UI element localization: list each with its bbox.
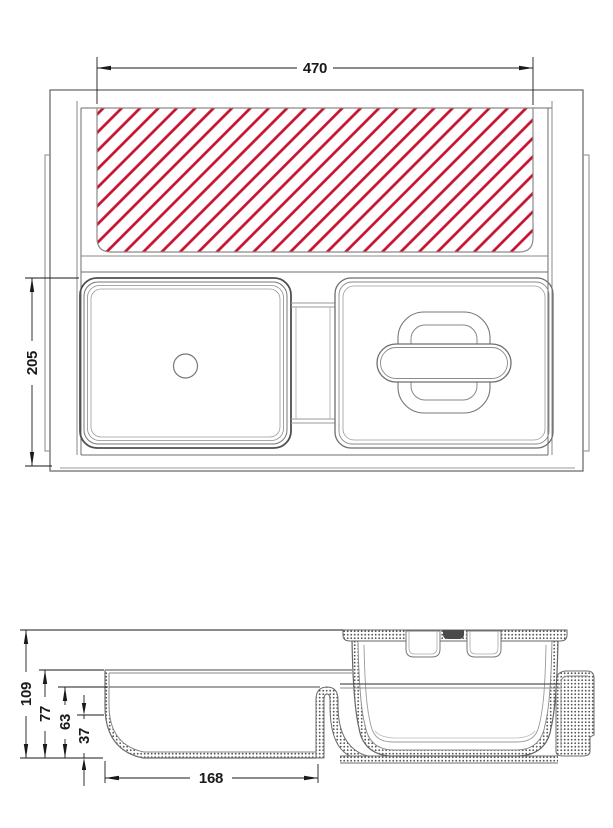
arrowhead-down — [82, 703, 86, 715]
arrowhead-up — [63, 687, 67, 701]
tray-wall-section-fill — [105, 670, 316, 758]
left-slide-clip — [45, 155, 50, 451]
arrowhead-right — [304, 776, 318, 780]
dim-total-height-label: 109 — [18, 682, 35, 706]
right-wall-section — [556, 671, 594, 756]
arrowhead-down — [63, 744, 67, 758]
top-view-plan — [45, 90, 589, 471]
deep-bin-section — [343, 630, 567, 756]
technical-drawing-page: 470 205 — [0, 0, 613, 828]
dimension-total-height: 109 — [18, 630, 35, 758]
arrowhead-right — [519, 66, 533, 71]
dim-base-step-height-label: 37 — [76, 728, 93, 744]
anti-slip-mat-hatched — [97, 108, 533, 252]
arrowhead-left — [97, 66, 111, 71]
dim-tray-length-label: 168 — [199, 770, 223, 787]
technical-drawing: 470 205 — [0, 0, 613, 828]
dim-width-label: 470 — [303, 60, 327, 77]
arrowhead-up — [30, 278, 34, 292]
right-slide-clip — [583, 155, 589, 451]
dimension-tray-length: 168 — [105, 761, 318, 787]
dimension-rim-height: 77 — [37, 670, 54, 758]
handle-bar — [377, 344, 511, 382]
arrowhead-up — [82, 758, 86, 770]
dim-depth-label: 205 — [24, 351, 41, 375]
arrowhead-down — [43, 744, 47, 758]
arrowhead-up — [24, 630, 28, 644]
side-view-dimensions: 109 77 63 37 — [18, 630, 343, 787]
handle-bar-section — [443, 630, 464, 639]
arrowhead-down — [24, 744, 28, 758]
tray-outer-profile — [105, 670, 316, 758]
arrowhead-left — [105, 776, 119, 780]
dimension-inner-rim-height: 63 — [57, 687, 74, 758]
side-view-section — [105, 630, 594, 763]
dim-inner-rim-height-label: 63 — [57, 714, 74, 730]
arrowhead-up — [43, 670, 47, 684]
dimension-base-step-height: 37 — [76, 695, 93, 786]
dim-rim-height-label: 77 — [37, 706, 54, 722]
arrowhead-down — [30, 452, 34, 466]
